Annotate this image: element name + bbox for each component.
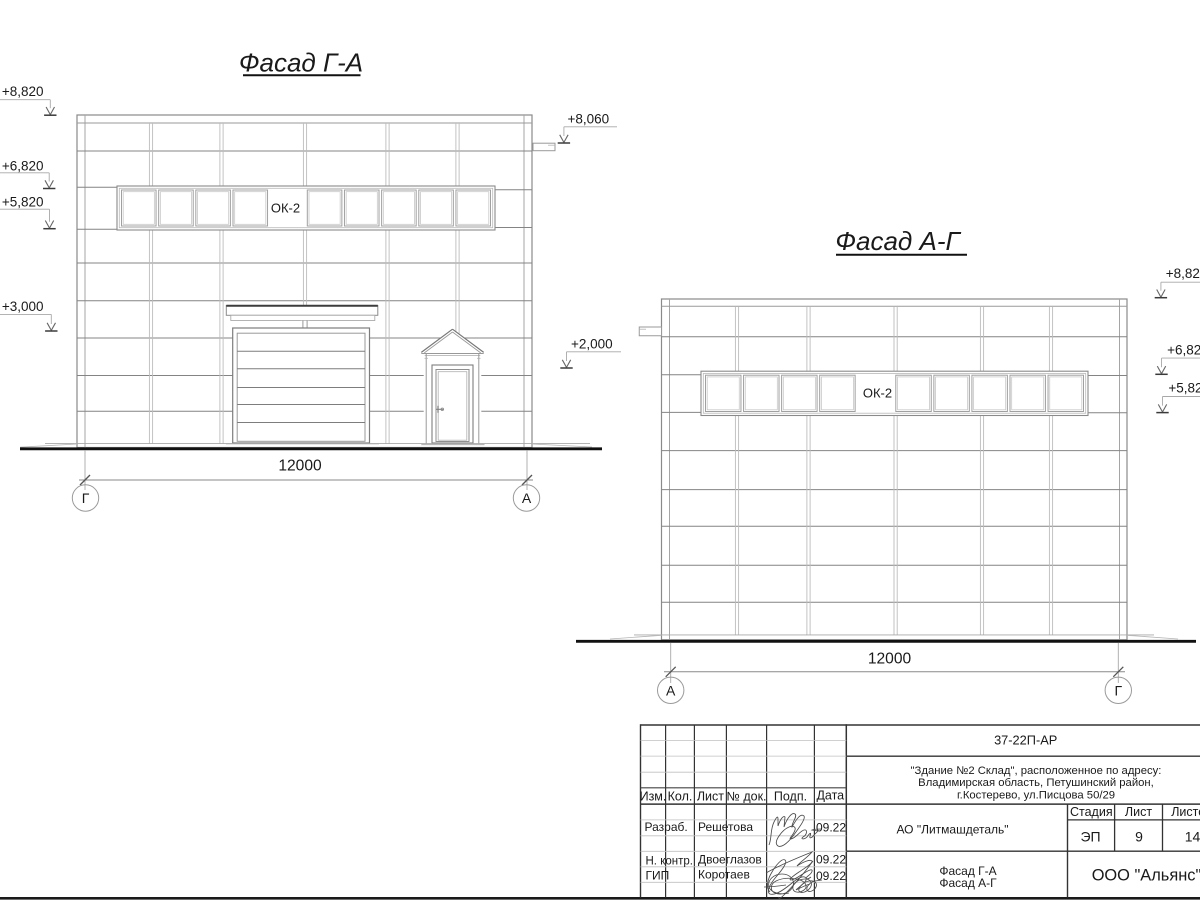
svg-text:Стадия: Стадия — [1070, 805, 1113, 819]
svg-text:"Здание №2 Склад", расположенн: "Здание №2 Склад", расположенное по адре… — [911, 765, 1162, 777]
svg-text:ЭП: ЭП — [1080, 828, 1100, 844]
svg-text:А: А — [666, 682, 676, 698]
svg-text:+8,060: +8,060 — [568, 112, 610, 127]
svg-text:Фасад А-Г: Фасад А-Г — [835, 226, 961, 256]
svg-text:Дата: Дата — [816, 789, 844, 803]
svg-text:Фасад Г-А: Фасад Г-А — [239, 48, 363, 78]
svg-text:Подп.: Подп. — [774, 789, 807, 803]
svg-text:+5,820: +5,820 — [1168, 381, 1200, 396]
svg-text:9: 9 — [1135, 828, 1143, 844]
svg-text:Фасад А-Г: Фасад А-Г — [939, 876, 997, 890]
svg-text:ОК-2: ОК-2 — [271, 201, 300, 216]
svg-text:Коротаев: Коротаев — [698, 868, 750, 882]
svg-text:12000: 12000 — [868, 651, 912, 668]
svg-text:Владимирская область, Петушинс: Владимирская область, Петушинский район, — [918, 777, 1154, 789]
svg-text:+2,000: +2,000 — [571, 337, 613, 352]
svg-text:+6,820: +6,820 — [1167, 342, 1200, 357]
svg-text:09.22: 09.22 — [816, 853, 846, 867]
svg-text:+6,820: +6,820 — [2, 158, 44, 173]
svg-text:Кол.: Кол. — [668, 789, 693, 803]
svg-text:Разраб.: Разраб. — [645, 820, 688, 834]
svg-text:09.22: 09.22 — [816, 821, 846, 835]
svg-text:09.22: 09.22 — [816, 869, 846, 883]
svg-text:+8,820: +8,820 — [1166, 266, 1200, 281]
svg-text:Листов: Листов — [1171, 805, 1200, 819]
svg-text:ОК-2: ОК-2 — [863, 386, 892, 401]
svg-text:+3,000: +3,000 — [2, 299, 44, 314]
svg-text:ГИП: ГИП — [646, 868, 670, 882]
svg-text:Н. контр.: Н. контр. — [646, 856, 693, 868]
svg-text:Изм.: Изм. — [640, 789, 667, 803]
svg-text:Двоеглазов: Двоеглазов — [698, 853, 762, 867]
svg-text:АО "Литмашдеталь": АО "Литмашдеталь" — [896, 823, 1008, 837]
svg-text:А: А — [522, 490, 532, 506]
svg-text:Г: Г — [82, 490, 90, 506]
svg-text:Лист: Лист — [697, 789, 724, 803]
svg-text:Г: Г — [1115, 682, 1123, 698]
svg-text:+5,820: +5,820 — [2, 194, 44, 209]
svg-text:37-22П-АР: 37-22П-АР — [994, 733, 1057, 748]
svg-text:№ док.: № док. — [726, 789, 766, 803]
svg-text:ООО "Альянс": ООО "Альянс" — [1092, 867, 1200, 885]
svg-text:12000: 12000 — [278, 458, 322, 475]
svg-text:г.Костерево, ул.Писцова 50/29: г.Костерево, ул.Писцова 50/29 — [957, 790, 1115, 802]
svg-text:Лист: Лист — [1125, 805, 1152, 819]
svg-text:Решетова: Решетова — [698, 820, 753, 834]
svg-text:+8,820: +8,820 — [2, 84, 44, 99]
svg-text:14: 14 — [1185, 828, 1200, 844]
